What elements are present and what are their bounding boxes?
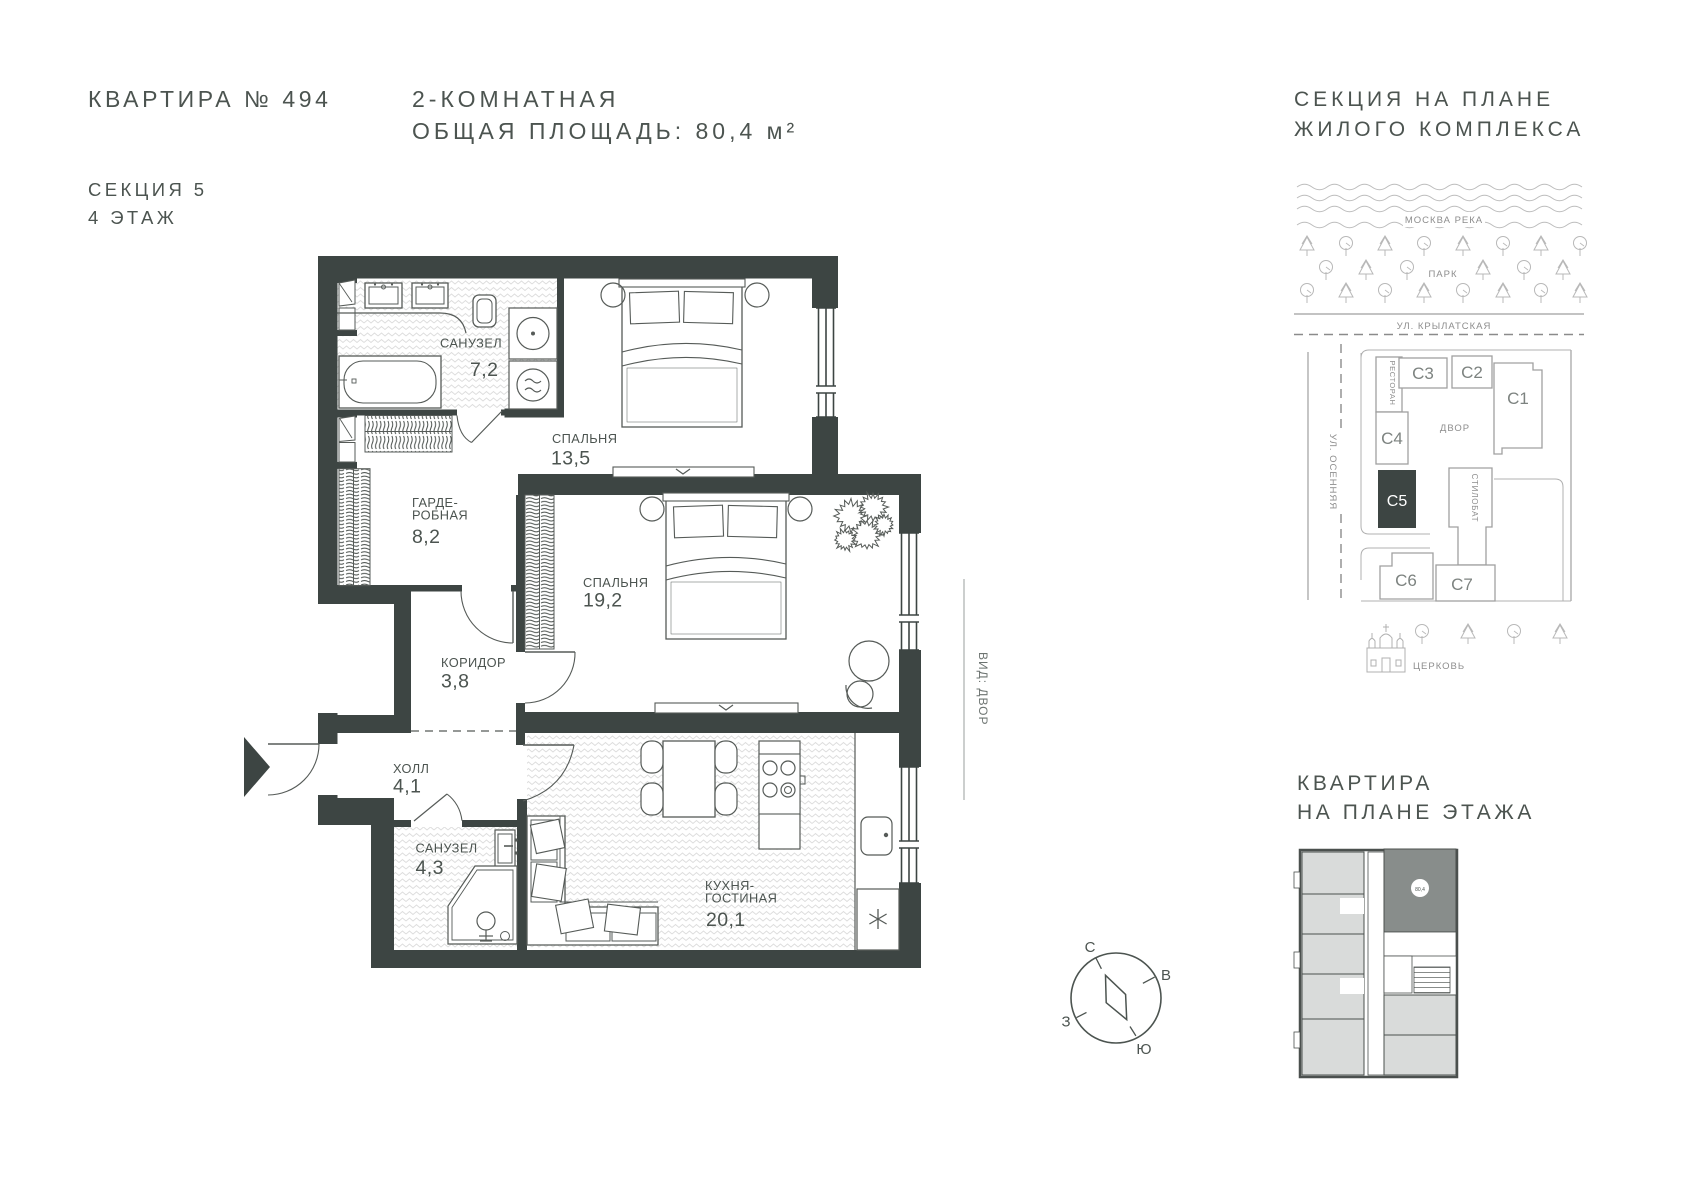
svg-text:ДВОР: ДВОР — [1440, 423, 1470, 434]
svg-text:МОСКВА РЕКА: МОСКВА РЕКА — [1405, 215, 1483, 226]
svg-text:С4: С4 — [1381, 429, 1403, 448]
svg-text:3,8: 3,8 — [441, 671, 469, 693]
svg-text:ЦЕРКОВЬ: ЦЕРКОВЬ — [1413, 661, 1465, 672]
svg-text:САНУЗЕЛ: САНУЗЕЛ — [440, 336, 502, 351]
svg-text:ОБЩАЯ ПЛОЩАДЬ: 80,4 м²: ОБЩАЯ ПЛОЩАДЬ: 80,4 м² — [412, 118, 798, 144]
svg-text:ВИД: ДВОР: ВИД: ДВОР — [976, 652, 990, 726]
svg-text:4,1: 4,1 — [393, 776, 421, 798]
svg-text:УЛ. КРЫЛАТСКАЯ: УЛ. КРЫЛАТСКАЯ — [1397, 321, 1492, 332]
svg-text:С1: С1 — [1507, 389, 1529, 408]
svg-text:СЕКЦИЯ НА ПЛАНЕ: СЕКЦИЯ НА ПЛАНЕ — [1294, 88, 1554, 111]
svg-text:20,1: 20,1 — [706, 909, 746, 931]
svg-text:80,4: 80,4 — [1415, 887, 1425, 893]
svg-text:ХОЛЛ: ХОЛЛ — [393, 761, 429, 776]
svg-text:КВАРТИРА № 494: КВАРТИРА № 494 — [88, 86, 332, 112]
svg-text:КВАРТИРА: КВАРТИРА — [1297, 772, 1433, 795]
svg-text:13,5: 13,5 — [551, 448, 591, 470]
svg-text:В: В — [1161, 967, 1171, 984]
svg-text:САНУЗЕЛ: САНУЗЕЛ — [416, 841, 478, 856]
svg-text:КОРИДОР: КОРИДОР — [441, 655, 506, 670]
svg-text:УЛ. ОСЕННЯЯ: УЛ. ОСЕННЯЯ — [1327, 434, 1338, 510]
svg-text:ГОСТИНАЯ: ГОСТИНАЯ — [705, 891, 777, 906]
svg-text:ЖИЛОГО КОМПЛЕКСА: ЖИЛОГО КОМПЛЕКСА — [1294, 118, 1584, 141]
svg-text:РОБНАЯ: РОБНАЯ — [412, 508, 468, 523]
svg-text:7,2: 7,2 — [470, 359, 498, 381]
svg-text:НА ПЛАНЕ ЭТАЖА: НА ПЛАНЕ ЭТАЖА — [1297, 801, 1535, 824]
svg-text:С3: С3 — [1412, 364, 1434, 383]
svg-text:ПАРК: ПАРК — [1428, 269, 1457, 280]
svg-text:СПАЛЬНЯ: СПАЛЬНЯ — [552, 431, 617, 446]
svg-text:СТИЛОБАТ: СТИЛОБАТ — [1470, 474, 1479, 523]
svg-text:Ю: Ю — [1136, 1041, 1151, 1058]
svg-text:4 ЭТАЖ: 4 ЭТАЖ — [88, 207, 177, 228]
svg-text:РЕСТОРАН: РЕСТОРАН — [1388, 361, 1397, 406]
svg-text:2-КОМНАТНАЯ: 2-КОМНАТНАЯ — [412, 86, 619, 112]
svg-text:С6: С6 — [1395, 571, 1417, 590]
svg-text:СПАЛЬНЯ: СПАЛЬНЯ — [583, 575, 648, 590]
svg-text:СЕКЦИЯ 5: СЕКЦИЯ 5 — [88, 179, 207, 200]
svg-text:З: З — [1061, 1014, 1070, 1031]
svg-text:С7: С7 — [1451, 575, 1473, 594]
svg-text:8,2: 8,2 — [412, 526, 440, 548]
svg-text:4,3: 4,3 — [416, 857, 444, 879]
svg-text:С2: С2 — [1461, 363, 1483, 382]
svg-text:С: С — [1085, 939, 1096, 956]
svg-text:С5: С5 — [1387, 493, 1408, 510]
svg-text:19,2: 19,2 — [583, 590, 623, 612]
